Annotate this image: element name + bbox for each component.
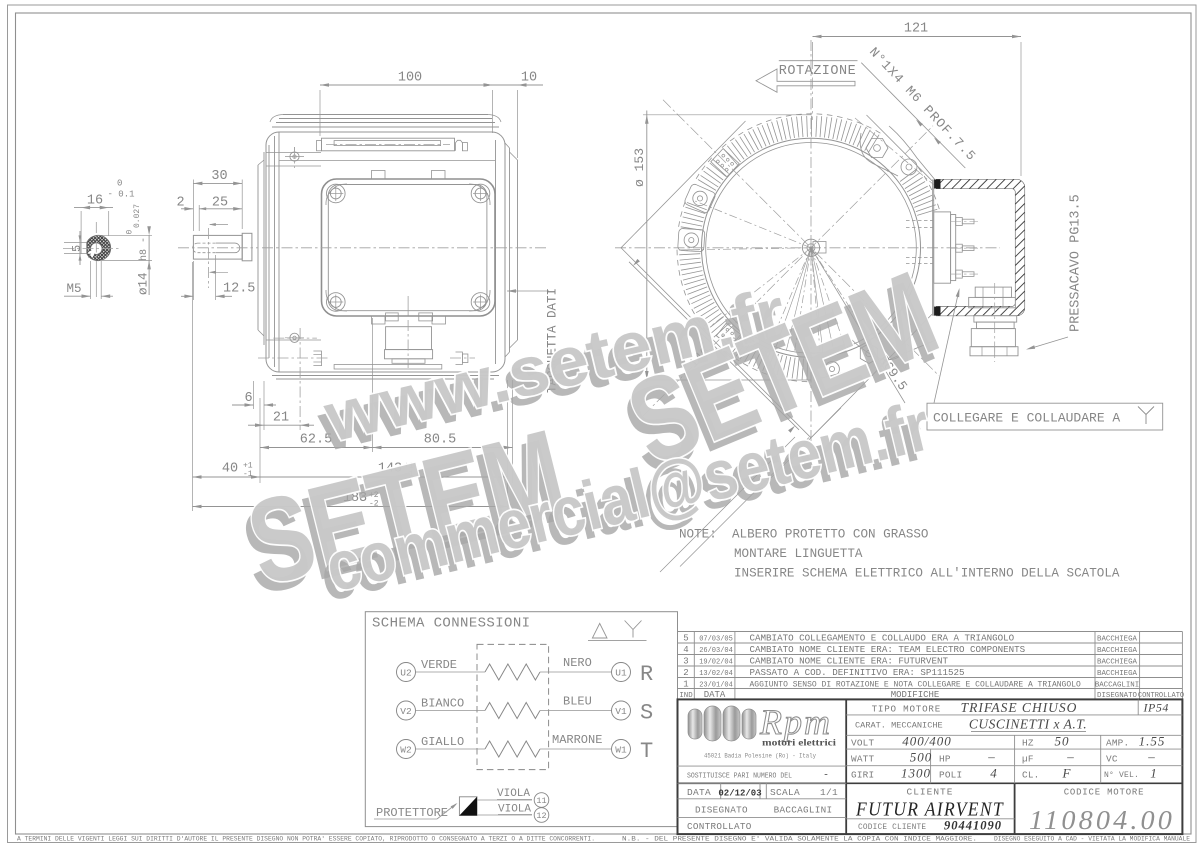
- svg-text:0: 0: [117, 179, 122, 189]
- svg-text:45021 Badia Polesine (Ro) - It: 45021 Badia Polesine (Ro) - Italy: [704, 753, 816, 760]
- svg-text:400/400: 400/400: [902, 734, 952, 749]
- svg-text:CAMBIATO COLLEGAMENTO E COLLAU: CAMBIATO COLLEGAMENTO E COLLAUDO ERA A T…: [750, 633, 1015, 644]
- svg-text:0: 0: [126, 230, 135, 235]
- svg-text:- 0.1: - 0.1: [108, 190, 135, 200]
- svg-text:5: 5: [70, 245, 84, 252]
- svg-text:2: 2: [683, 668, 688, 678]
- svg-text:–: –: [987, 749, 996, 764]
- svg-text:ROTAZIONE: ROTAZIONE: [779, 64, 856, 79]
- svg-text:Rpm: Rpm: [759, 702, 832, 742]
- svg-text:19/02/04: 19/02/04: [699, 659, 733, 667]
- svg-text:N° VEL.: N° VEL.: [1104, 771, 1139, 780]
- svg-text:N.B. - DEL PRESENTE DISEGNO E': N.B. - DEL PRESENTE DISEGNO E' VALIDA SO…: [622, 836, 977, 844]
- svg-text:HZ: HZ: [1022, 738, 1034, 749]
- svg-text:AMP.: AMP.: [1106, 738, 1129, 749]
- svg-text:CL.: CL.: [1022, 770, 1039, 781]
- svg-text:CAMBIATO NOME CLIENTE ERA: TEA: CAMBIATO NOME CLIENTE ERA: TEAM ELECTRO …: [750, 644, 1026, 655]
- svg-text:NERO: NERO: [563, 656, 592, 670]
- svg-text:CODICE CLIENTE: CODICE CLIENTE: [858, 824, 926, 832]
- svg-text:CAMBIATO NOME CLIENTE ERA: FUT: CAMBIATO NOME CLIENTE ERA: FUTURVENT: [750, 656, 949, 667]
- svg-text:BACCAGLINI: BACCAGLINI: [774, 804, 833, 815]
- svg-text:BACCHIEGA: BACCHIEGA: [1097, 659, 1137, 667]
- svg-text:40: 40: [222, 462, 238, 477]
- svg-text:VC: VC: [1106, 754, 1118, 765]
- svg-text:R: R: [640, 662, 653, 687]
- svg-text:12.5: 12.5: [223, 282, 255, 297]
- svg-text:121: 121: [904, 22, 928, 37]
- svg-text:–: –: [1066, 749, 1075, 764]
- svg-text:1/1: 1/1: [820, 787, 838, 798]
- svg-text:GIALLO: GIALLO: [421, 735, 464, 749]
- svg-text:30: 30: [211, 169, 227, 184]
- svg-text:µF: µF: [1022, 754, 1034, 765]
- svg-text:M5: M5: [67, 282, 82, 296]
- svg-text:BLEU: BLEU: [563, 695, 592, 709]
- svg-text:ALBERO PROTETTO CON GRASSO: ALBERO PROTETTO CON GRASSO: [732, 528, 929, 542]
- svg-text:16: 16: [87, 194, 103, 209]
- svg-text:WATT: WATT: [851, 754, 874, 765]
- svg-text:IP54: IP54: [1143, 701, 1169, 715]
- svg-text:INSERIRE SCHEMA ELETTRICO ALL': INSERIRE SCHEMA ELETTRICO ALL'INTERNO DE…: [734, 566, 1120, 580]
- svg-text:POLI: POLI: [939, 770, 962, 781]
- svg-text:BACCHIEGA: BACCHIEGA: [1097, 670, 1137, 678]
- svg-text:DATA: DATA: [687, 787, 711, 798]
- svg-text:6: 6: [244, 391, 252, 406]
- svg-text:W2: W2: [400, 745, 412, 756]
- svg-text:TRIFASE CHIUSO: TRIFASE CHIUSO: [961, 700, 1078, 715]
- svg-text:CONTROLLATO: CONTROLLATO: [687, 821, 752, 832]
- svg-text:PRESSACAVO PG13.5: PRESSACAVO PG13.5: [1069, 194, 1084, 332]
- svg-text:V1: V1: [615, 706, 627, 717]
- svg-text:1: 1: [683, 680, 688, 690]
- svg-text:VERDE: VERDE: [421, 658, 457, 672]
- svg-text:SCALA: SCALA: [770, 787, 800, 798]
- svg-text:ø 153: ø 153: [632, 148, 647, 187]
- svg-text:BACCHIEGA: BACCHIEGA: [1097, 636, 1137, 644]
- svg-text:TIPO MOTORE: TIPO MOTORE: [872, 703, 941, 714]
- svg-text:SCHEMA CONNESSIONI: SCHEMA CONNESSIONI: [372, 616, 530, 632]
- svg-text:BIANCO: BIANCO: [421, 697, 464, 711]
- svg-text:FUTUR AIRVENT: FUTUR AIRVENT: [855, 799, 1004, 820]
- svg-text:1.55: 1.55: [1139, 734, 1166, 749]
- svg-text:HP: HP: [939, 754, 951, 765]
- svg-text:DISEGNO ESEGUITO A CAD - VIETA: DISEGNO ESEGUITO A CAD - VIETATA LA MODI…: [994, 836, 1190, 844]
- svg-text:110804.00: 110804.00: [1029, 805, 1175, 835]
- svg-text:21: 21: [273, 411, 289, 426]
- svg-text:PROTETTORE: PROTETTORE: [376, 806, 448, 820]
- svg-text:MONTARE LINGUETTA: MONTARE LINGUETTA: [734, 547, 863, 561]
- svg-text:W1: W1: [615, 745, 627, 756]
- svg-text:CODICE MOTORE: CODICE MOTORE: [1064, 788, 1145, 798]
- svg-text:23/01/04: 23/01/04: [699, 682, 733, 690]
- svg-text:–: –: [1147, 749, 1156, 764]
- svg-text:VIOLA: VIOLA: [497, 788, 530, 800]
- svg-text:U2: U2: [400, 668, 412, 679]
- svg-text:A TERMINI DELLE VIGENTI LEGGI: A TERMINI DELLE VIGENTI LEGGI SUI DIRITT…: [17, 836, 595, 844]
- svg-text:13/02/04: 13/02/04: [699, 670, 733, 678]
- svg-text:PASSATO A COD. DEFINITIVO ERA:: PASSATO A COD. DEFINITIVO ERA: SP111525: [750, 667, 965, 678]
- svg-text:4: 4: [990, 766, 998, 781]
- svg-text:COLLEGARE E COLLAUDARE A: COLLEGARE E COLLAUDARE A: [933, 411, 1120, 426]
- svg-text:DISEGNATO: DISEGNATO: [695, 804, 748, 815]
- svg-text:AGGIUNTO SENSO DI ROTAZIONE E: AGGIUNTO SENSO DI ROTAZIONE E NOTA COLLE…: [750, 681, 1081, 690]
- svg-text:F: F: [1062, 766, 1072, 781]
- svg-text:MARRONE: MARRONE: [552, 733, 602, 747]
- svg-text:4: 4: [683, 645, 688, 655]
- svg-text:h8 -: h8 -: [138, 237, 150, 261]
- svg-text:26/03/04: 26/03/04: [699, 647, 733, 655]
- svg-text:CARAT. MECCANICHE: CARAT. MECCANICHE: [855, 721, 943, 731]
- svg-text:11: 11: [536, 796, 546, 806]
- svg-text:0.027: 0.027: [133, 204, 142, 228]
- svg-text:SOSTITUISCE PARI NUMERO DEL: SOSTITUISCE PARI NUMERO DEL: [687, 772, 792, 780]
- svg-text:S: S: [640, 701, 653, 726]
- svg-text:VIOLA: VIOLA: [498, 804, 531, 816]
- svg-text:T: T: [640, 739, 653, 764]
- svg-text:90441090: 90441090: [944, 818, 1002, 832]
- svg-text:VOLT: VOLT: [851, 738, 874, 749]
- svg-text:ø14: ø14: [137, 272, 151, 295]
- svg-text:10: 10: [521, 71, 537, 86]
- svg-text:2: 2: [176, 196, 184, 211]
- svg-text:CLIENTE: CLIENTE: [907, 787, 954, 798]
- svg-text:50: 50: [1055, 734, 1070, 749]
- svg-text:U1: U1: [615, 668, 627, 679]
- svg-text:25: 25: [212, 196, 228, 211]
- svg-text:12: 12: [536, 811, 546, 821]
- svg-text:CUSCINETTI x A.T.: CUSCINETTI x A.T.: [969, 716, 1087, 731]
- svg-text:motori elettrici: motori elettrici: [762, 739, 836, 749]
- svg-text:500: 500: [910, 750, 933, 765]
- svg-text:07/03/05: 07/03/05: [699, 636, 733, 644]
- svg-text:02/12/03: 02/12/03: [718, 788, 761, 798]
- svg-text:5: 5: [683, 634, 688, 644]
- svg-text:1300: 1300: [901, 766, 931, 781]
- svg-text:GIRI: GIRI: [851, 770, 874, 781]
- svg-text:V2: V2: [400, 706, 412, 717]
- svg-text:3: 3: [683, 657, 688, 667]
- svg-text:-: -: [823, 770, 829, 781]
- svg-text:BACCHIEGA: BACCHIEGA: [1097, 647, 1137, 655]
- svg-text:1: 1: [1150, 766, 1158, 781]
- svg-text:100: 100: [398, 71, 422, 86]
- svg-text:BACCAGLINI: BACCAGLINI: [1095, 682, 1139, 690]
